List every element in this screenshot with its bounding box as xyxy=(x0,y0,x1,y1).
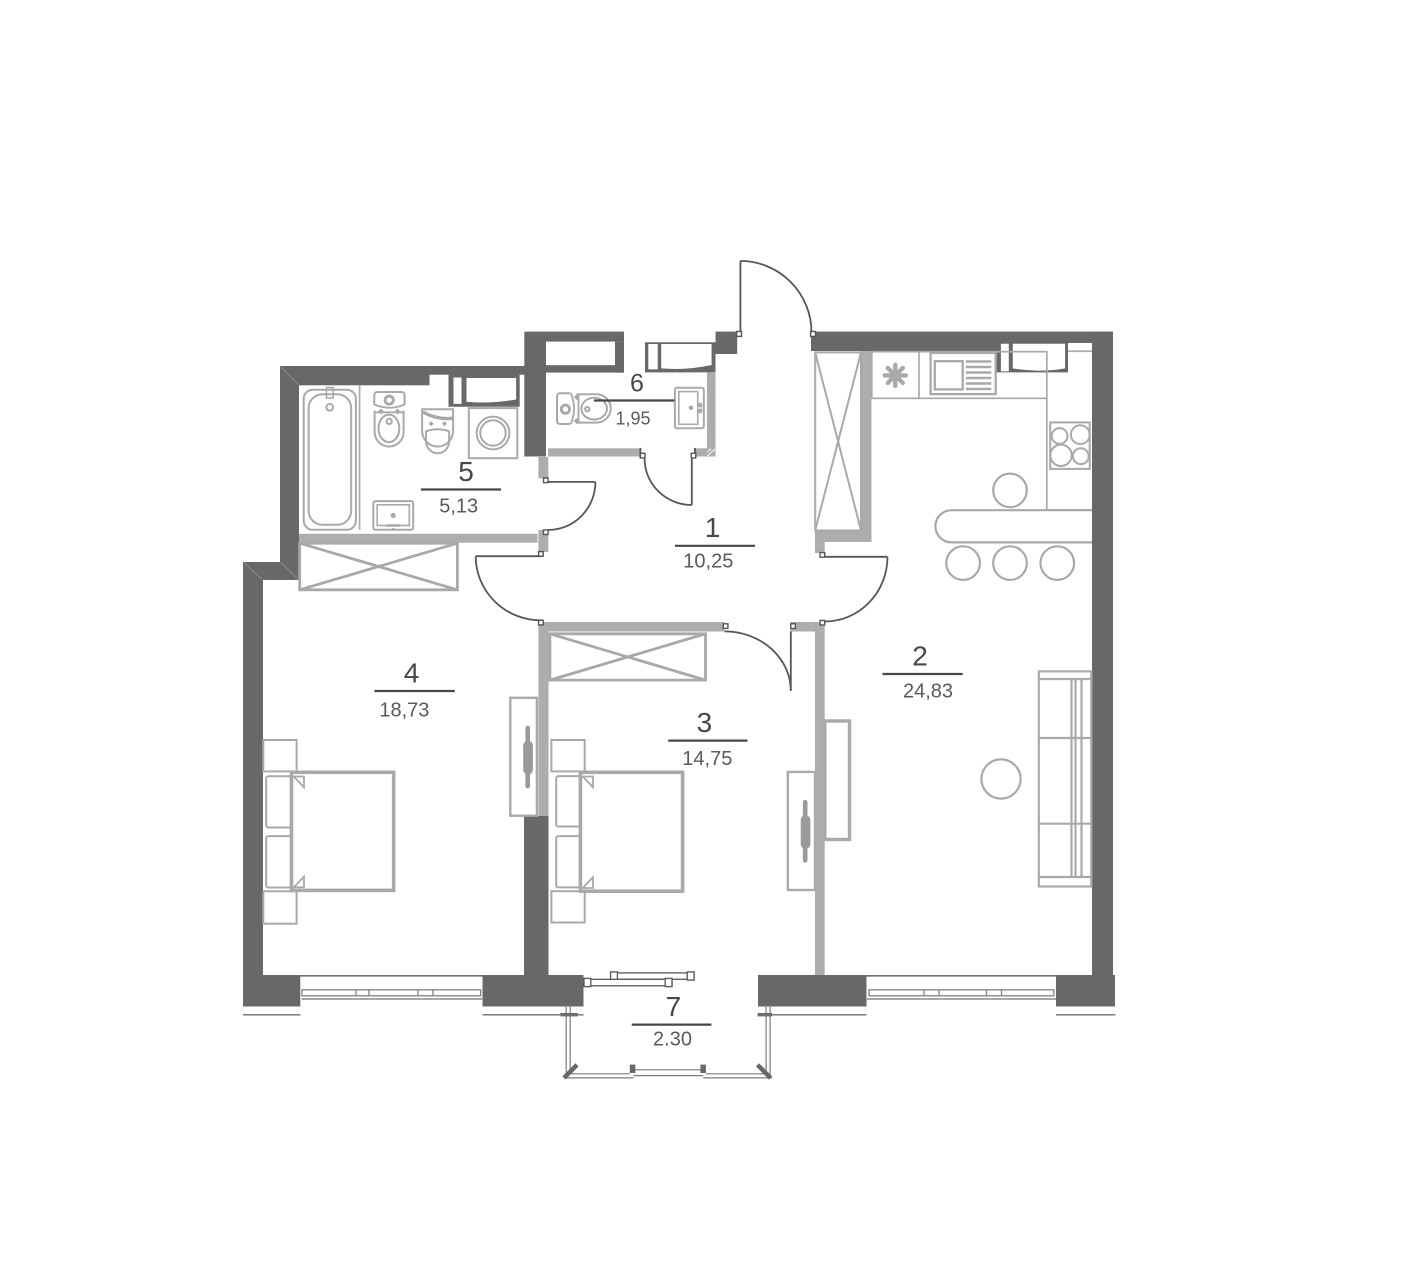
svg-text:1,95: 1,95 xyxy=(615,408,650,428)
svg-text:2: 2 xyxy=(912,640,928,671)
svg-text:7: 7 xyxy=(666,991,682,1022)
svg-text:2.30: 2.30 xyxy=(653,1028,692,1050)
svg-text:4: 4 xyxy=(404,657,420,688)
svg-text:24,83: 24,83 xyxy=(903,681,953,703)
svg-text:3: 3 xyxy=(697,707,713,738)
svg-text:5: 5 xyxy=(458,456,474,487)
svg-text:5,13: 5,13 xyxy=(439,495,478,517)
svg-text:18,73: 18,73 xyxy=(379,700,429,722)
svg-text:1: 1 xyxy=(705,512,721,543)
svg-text:6: 6 xyxy=(630,369,644,397)
svg-text:14,75: 14,75 xyxy=(682,748,732,770)
svg-text:10,25: 10,25 xyxy=(683,551,733,573)
